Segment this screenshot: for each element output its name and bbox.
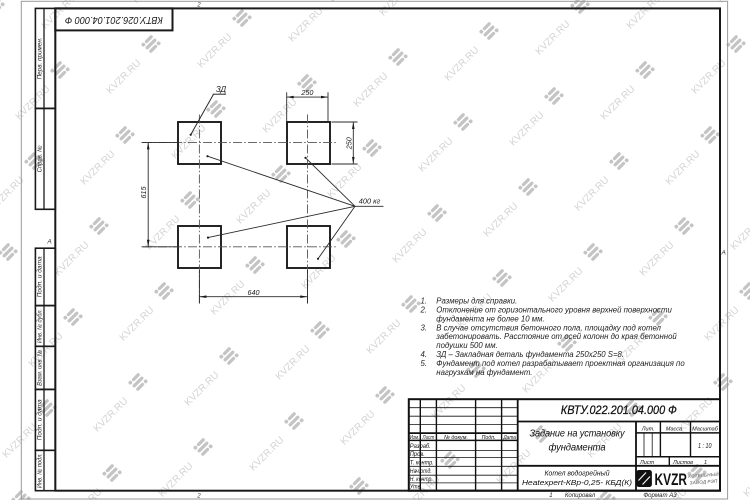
svg-text:А: А bbox=[721, 250, 726, 257]
svg-text:KVZR.RU: KVZR.RU bbox=[339, 409, 378, 448]
svg-text:3.: 3. bbox=[420, 323, 427, 332]
svg-text:Пров.: Пров. bbox=[410, 452, 425, 458]
svg-text:KVZR.RU: KVZR.RU bbox=[0, 175, 27, 214]
svg-text:фундамента не более 10 мм.: фундамента не более 10 мм. bbox=[436, 314, 544, 323]
svg-text:KVZR.RU: KVZR.RU bbox=[14, 84, 53, 123]
svg-text:Т. контр.: Т. контр. bbox=[410, 460, 434, 466]
svg-text:250: 250 bbox=[344, 137, 353, 150]
svg-text:250: 250 bbox=[300, 88, 313, 97]
svg-text:KVZR.RU: KVZR.RU bbox=[443, 45, 482, 84]
svg-text:KVZR.RU: KVZR.RU bbox=[287, 6, 326, 45]
svg-text:KVZR.RU: KVZR.RU bbox=[625, 0, 664, 32]
svg-text:KVZR.RU: KVZR.RU bbox=[118, 305, 157, 344]
svg-text:1: 1 bbox=[704, 460, 707, 466]
svg-text:KVZR.RU: KVZR.RU bbox=[508, 110, 547, 149]
svg-text:Инв. № подл.: Инв. № подл. bbox=[37, 453, 44, 488]
svg-text:Котел водогрейный: Котел водогрейный bbox=[545, 468, 611, 477]
svg-text:KVZR.RU: KVZR.RU bbox=[0, 266, 1, 305]
svg-text:Масштаб: Масштаб bbox=[692, 427, 719, 433]
svg-text:Отклонение от горизонтального: Отклонение от горизонтального уровня вер… bbox=[436, 306, 672, 315]
svg-text:Изм.: Изм. bbox=[410, 435, 420, 441]
svg-text:KVZR.RU: KVZR.RU bbox=[482, 201, 521, 240]
svg-text:Лит.: Лит. bbox=[641, 427, 655, 433]
svg-text:Heatexpert-КВр-0,25- КБД(К): Heatexpert-КВр-0,25- КБД(К) bbox=[522, 478, 632, 487]
svg-text:KVZR.RU: KVZR.RU bbox=[53, 240, 92, 279]
svg-text:640: 640 bbox=[248, 288, 260, 297]
svg-text:KVZR.RU: KVZR.RU bbox=[79, 149, 118, 188]
svg-text:Нач.отд.: Нач.отд. bbox=[410, 469, 432, 475]
svg-text:Утв.: Утв. bbox=[409, 485, 422, 491]
svg-text:Справ. №: Справ. № bbox=[37, 145, 44, 172]
svg-text:Перв. примен.: Перв. примен. bbox=[38, 37, 44, 79]
svg-text:KVZR.RU: KVZR.RU bbox=[183, 370, 222, 409]
svg-text:KVZR.RU: KVZR.RU bbox=[729, 214, 750, 253]
svg-text:КВТУ.026.201.04.000 Ф: КВТУ.026.201.04.000 Ф bbox=[65, 14, 163, 25]
svg-text:KVZR.RU: KVZR.RU bbox=[170, 123, 209, 162]
svg-text:Копировал: Копировал bbox=[565, 492, 596, 499]
svg-text:KVZR.RU: KVZR.RU bbox=[92, 396, 131, 435]
svg-text:KVZR.RU: KVZR.RU bbox=[105, 58, 144, 97]
svg-text:KVZR.RU: KVZR.RU bbox=[586, 422, 625, 461]
svg-text:ЗД – Закладная деталь фундамен: ЗД – Закладная деталь фундамента 250х250… bbox=[436, 350, 624, 359]
svg-text:Фундамент под котел разрабатыв: Фундамент под котел разрабатывает проект… bbox=[436, 359, 685, 368]
svg-text:KVZR.RU: KVZR.RU bbox=[690, 58, 729, 97]
svg-text:Подп. и дата: Подп. и дата bbox=[38, 256, 44, 298]
svg-text:ЗД: ЗД bbox=[216, 85, 227, 94]
svg-text:KVZR.RU: KVZR.RU bbox=[573, 175, 612, 214]
svg-text:KVZR.RU: KVZR.RU bbox=[638, 240, 677, 279]
svg-text:4.: 4. bbox=[420, 350, 427, 359]
svg-text:KVZR.RU: KVZR.RU bbox=[209, 279, 248, 318]
svg-text:KVZR.RU: KVZR.RU bbox=[599, 84, 638, 123]
svg-text:Листов: Листов bbox=[672, 460, 693, 466]
svg-text:KVZR.RU: KVZR.RU bbox=[274, 344, 313, 383]
svg-text:KVZR.RU: KVZR.RU bbox=[27, 331, 66, 370]
svg-text:нагрузкам на фундамент.: нагрузкам на фундамент. bbox=[436, 368, 532, 377]
svg-text:Н. контр.: Н. контр. bbox=[410, 477, 433, 483]
svg-text:2: 2 bbox=[196, 3, 201, 9]
svg-text:KVZR.RU: KVZR.RU bbox=[365, 318, 404, 357]
svg-text:забетонировать. Расстояние от: забетонировать. Расстояние от осей колон… bbox=[435, 332, 677, 341]
svg-text:KVZR.RU: KVZR.RU bbox=[1, 422, 40, 461]
svg-text:KVZR.RU: KVZR.RU bbox=[391, 227, 430, 266]
svg-text:2: 2 bbox=[196, 494, 201, 500]
svg-text:1.: 1. bbox=[420, 297, 427, 306]
svg-text:KVZR.RU: KVZR.RU bbox=[547, 266, 586, 305]
svg-text:ЗАВОД РЭП: ЗАВОД РЭП bbox=[689, 478, 718, 485]
svg-text:Лист: Лист bbox=[639, 460, 655, 466]
svg-text:KVZR.RU: KVZR.RU bbox=[430, 383, 469, 422]
svg-text:Дата: Дата bbox=[503, 435, 517, 441]
svg-text:KVZR.RU: KVZR.RU bbox=[326, 162, 365, 201]
svg-text:Лист: Лист bbox=[422, 435, 434, 441]
svg-text:1: 1 bbox=[549, 492, 552, 499]
svg-text:5.: 5. bbox=[420, 359, 427, 368]
svg-text:KVZR.RU: KVZR.RU bbox=[157, 461, 196, 500]
svg-text:KVZR.RU: KVZR.RU bbox=[534, 19, 573, 58]
svg-text:KVZR.RU: KVZR.RU bbox=[300, 253, 339, 292]
svg-text:KVZR: KVZR bbox=[655, 470, 688, 489]
svg-text:KVZR.RU: KVZR.RU bbox=[248, 435, 287, 474]
svg-text:Инв. № дубл.: Инв. № дубл. bbox=[37, 309, 44, 343]
svg-text:KVZR.RU: KVZR.RU bbox=[235, 188, 274, 227]
svg-text:KVZR.RU: KVZR.RU bbox=[66, 487, 105, 500]
svg-text:№ докум.: № докум. bbox=[444, 435, 468, 441]
svg-text:В случае отсутствия бетонного: В случае отсутствия бетонного пола, площ… bbox=[436, 323, 661, 332]
svg-text:Масса: Масса bbox=[666, 427, 682, 433]
svg-text:КВТУ.022.201.04.000 Ф: КВТУ.022.201.04.000 Ф bbox=[561, 404, 677, 417]
svg-text:1 : 10: 1 : 10 bbox=[698, 443, 712, 450]
svg-text:Размеры для справки.: Размеры для справки. bbox=[436, 297, 517, 306]
svg-text:615: 615 bbox=[139, 186, 148, 199]
svg-text:KVZR.RU: KVZR.RU bbox=[664, 149, 703, 188]
svg-text:Формат А3: Формат А3 bbox=[643, 492, 677, 499]
svg-text:подушки 500 мм.: подушки 500 мм. bbox=[436, 341, 497, 350]
svg-text:Взам. инв. №: Взам. инв. № bbox=[37, 349, 44, 385]
svg-text:KVZR.RU: KVZR.RU bbox=[742, 461, 750, 500]
svg-text:2.: 2. bbox=[419, 306, 427, 315]
svg-text:KVZR.RU: KVZR.RU bbox=[417, 136, 456, 175]
svg-text:фундамента: фундамента bbox=[549, 442, 606, 454]
svg-text:KVZR.RU: KVZR.RU bbox=[261, 97, 300, 136]
svg-text:Разраб.: Разраб. bbox=[410, 444, 431, 450]
svg-text:Задание на установку: Задание на установку bbox=[530, 429, 626, 440]
svg-text:KVZR.RU: KVZR.RU bbox=[352, 71, 391, 110]
svg-text:400 кг: 400 кг bbox=[359, 197, 381, 206]
svg-text:А: А bbox=[46, 239, 51, 246]
svg-text:KVZR.RU: KVZR.RU bbox=[196, 32, 235, 71]
svg-text:KVZR.RU: KVZR.RU bbox=[703, 305, 742, 344]
svg-text:Подп. и дата: Подп. и дата bbox=[38, 399, 44, 441]
svg-text:Подп.: Подп. bbox=[482, 435, 496, 441]
